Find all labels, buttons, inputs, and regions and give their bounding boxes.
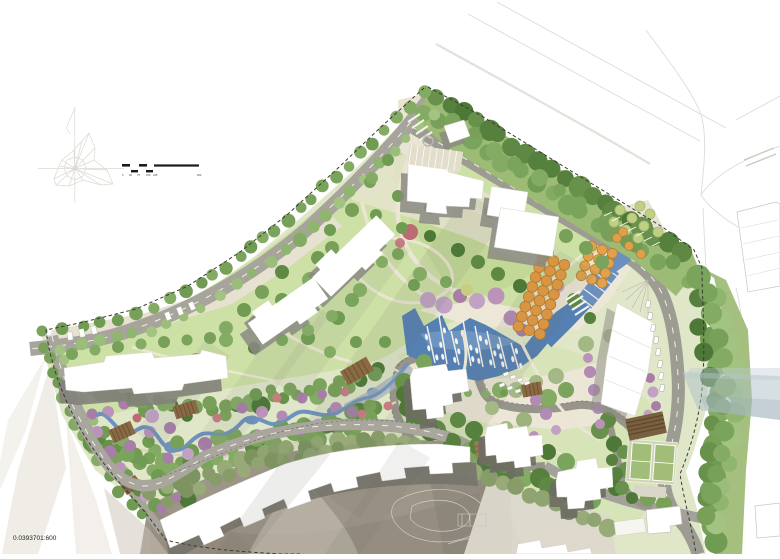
svg-text:225: 225 xyxy=(153,173,158,177)
svg-text:150: 150 xyxy=(146,173,151,177)
svg-text:0.0393701:600: 0.0393701:600 xyxy=(13,535,57,542)
svg-text:600: 600 xyxy=(197,173,202,177)
